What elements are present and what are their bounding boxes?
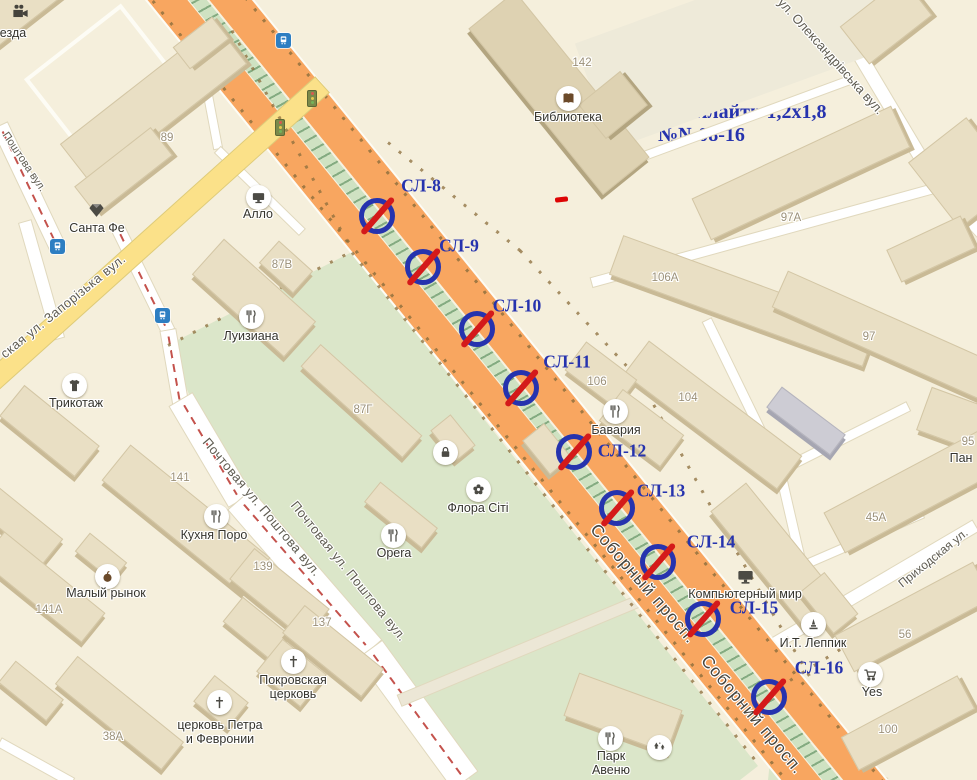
building-number: 106 [587,376,606,388]
building-number: 45А [866,512,886,524]
poi-малый-рынок [95,564,120,589]
building-number: 137 [312,617,331,629]
building-number: 97А [781,212,801,224]
building-number: 95 [962,436,975,448]
flower-icon [471,482,486,497]
camera-icon [11,2,30,21]
statue-icon [806,617,821,632]
tram-icon [278,35,289,46]
poi-label-санта-фе: Санта Фе [69,221,125,235]
building [54,656,183,770]
annotation-red-dash [554,196,567,202]
poi-label-кухня-поро: Кухня Поро [181,528,248,542]
lock-icon [438,445,453,460]
poi-покровская-церковь [281,649,306,674]
building-number: 139 [253,561,272,573]
cart-icon [863,667,878,682]
poi-label-библиотека: Библиотека [534,110,602,124]
restaurant-icon [209,509,224,524]
restaurant-icon [244,309,259,324]
poi-label-покровская-церковь: Покровская церковь [259,673,327,701]
citylight-marker-label: СЛ-12 [598,441,647,462]
traffic-light-dot [311,101,314,104]
poi-label-малый-рынок: Малый рынок [66,586,146,600]
building [886,215,976,282]
restaurant-icon [386,528,401,543]
monitor-icon [251,190,266,205]
poi-алло [246,185,271,210]
poi-закрытая-территория [433,440,458,465]
poi-церковь-петра-и-февронии [207,690,232,715]
traffic-light-dot [279,121,282,124]
poi-label-yes: Yes [862,685,882,699]
building-number: 87В [272,259,292,271]
tram-stop-icon [50,239,65,254]
poi-луизиана [239,304,264,329]
poi-yes [858,662,883,687]
tram-stop-icon [276,33,291,48]
poi-парк-деревья [647,735,672,760]
citylight-marker-label: СЛ-15 [730,598,779,619]
cross-icon [286,654,301,669]
poi-парк-авеню [598,726,623,751]
building-number: 141 [170,472,189,484]
building-number: 142 [572,57,591,69]
cross-icon [212,695,227,710]
road-street [0,738,74,780]
building-number: 56 [899,629,912,641]
citylight-marker-label: СЛ-13 [637,481,686,502]
traffic-light-icon [307,90,317,107]
building [908,117,977,229]
tram-stop-icon [155,308,170,323]
poi-label-луизиана: Луизиана [223,329,278,343]
map-canvas[interactable]: Сітілайти 1,2х1,8 №№08-16 8914297А87В106… [0,0,977,780]
traffic-light-dot [311,97,314,100]
poi-звезда [8,0,33,24]
poi-бавария [603,399,628,424]
map-text-label: Пан [950,451,973,465]
building [0,661,64,722]
building-number: 97 [863,331,876,343]
citylight-marker-label: СЛ-16 [795,658,844,679]
building-number: 104 [678,392,697,404]
restaurant-icon [608,404,623,419]
book-icon [561,91,576,106]
poi-opera [381,523,406,548]
poi-label-трикотаж: Трикотаж [49,396,103,410]
building-number: 100 [878,724,897,736]
poi-label-бавария: Бавария [591,423,640,437]
apple-icon [100,569,115,584]
poi-ит-леппик [801,612,826,637]
poi-label-парк-авеню: Парк Авеню [592,749,630,777]
poi-кухня-поро [204,504,229,529]
poi-компьютерный-мир [733,564,758,589]
building-number: 89 [161,132,174,144]
poi-флора-сити [466,477,491,502]
shirt-icon [67,378,82,393]
building-number: 141А [36,604,63,616]
citylight-marker-label: СЛ-11 [543,352,591,373]
poi-label-opera: Opera [377,546,412,560]
poi-label-звезда: езда [0,26,26,40]
building-number: 87Г [353,404,372,416]
traffic-light-icon [275,119,285,136]
building-number: 38А [103,731,123,743]
gem-icon [87,201,106,220]
citylight-marker-label: СЛ-9 [439,236,479,257]
poi-label-флора-сити: Флора Сіті [447,501,508,515]
poi-санта-фе [84,198,109,223]
traffic-light-dot [279,130,282,133]
citylight-marker-label: СЛ-10 [493,296,542,317]
building-number: 106А [652,272,679,284]
traffic-light-dot [279,126,282,129]
poi-label-алло: Алло [243,207,273,221]
poi-трикотаж [62,373,87,398]
tram-icon [157,310,168,321]
tram-icon [52,241,63,252]
trees-icon [652,740,667,755]
poi-библиотека [556,86,581,111]
citylight-marker-label: СЛ-14 [687,532,736,553]
poi-label-ит-леппик: И.Т. Леппик [780,636,847,650]
restaurant-icon [603,731,618,746]
traffic-light-dot [311,92,314,95]
monitor-icon [736,567,755,586]
poi-label-церковь-петра-и-февронии: церковь Петра и Февронии [177,718,262,746]
street-label: ская ул. Запорізька вул. [0,251,129,361]
citylight-marker-label: СЛ-8 [401,176,441,197]
